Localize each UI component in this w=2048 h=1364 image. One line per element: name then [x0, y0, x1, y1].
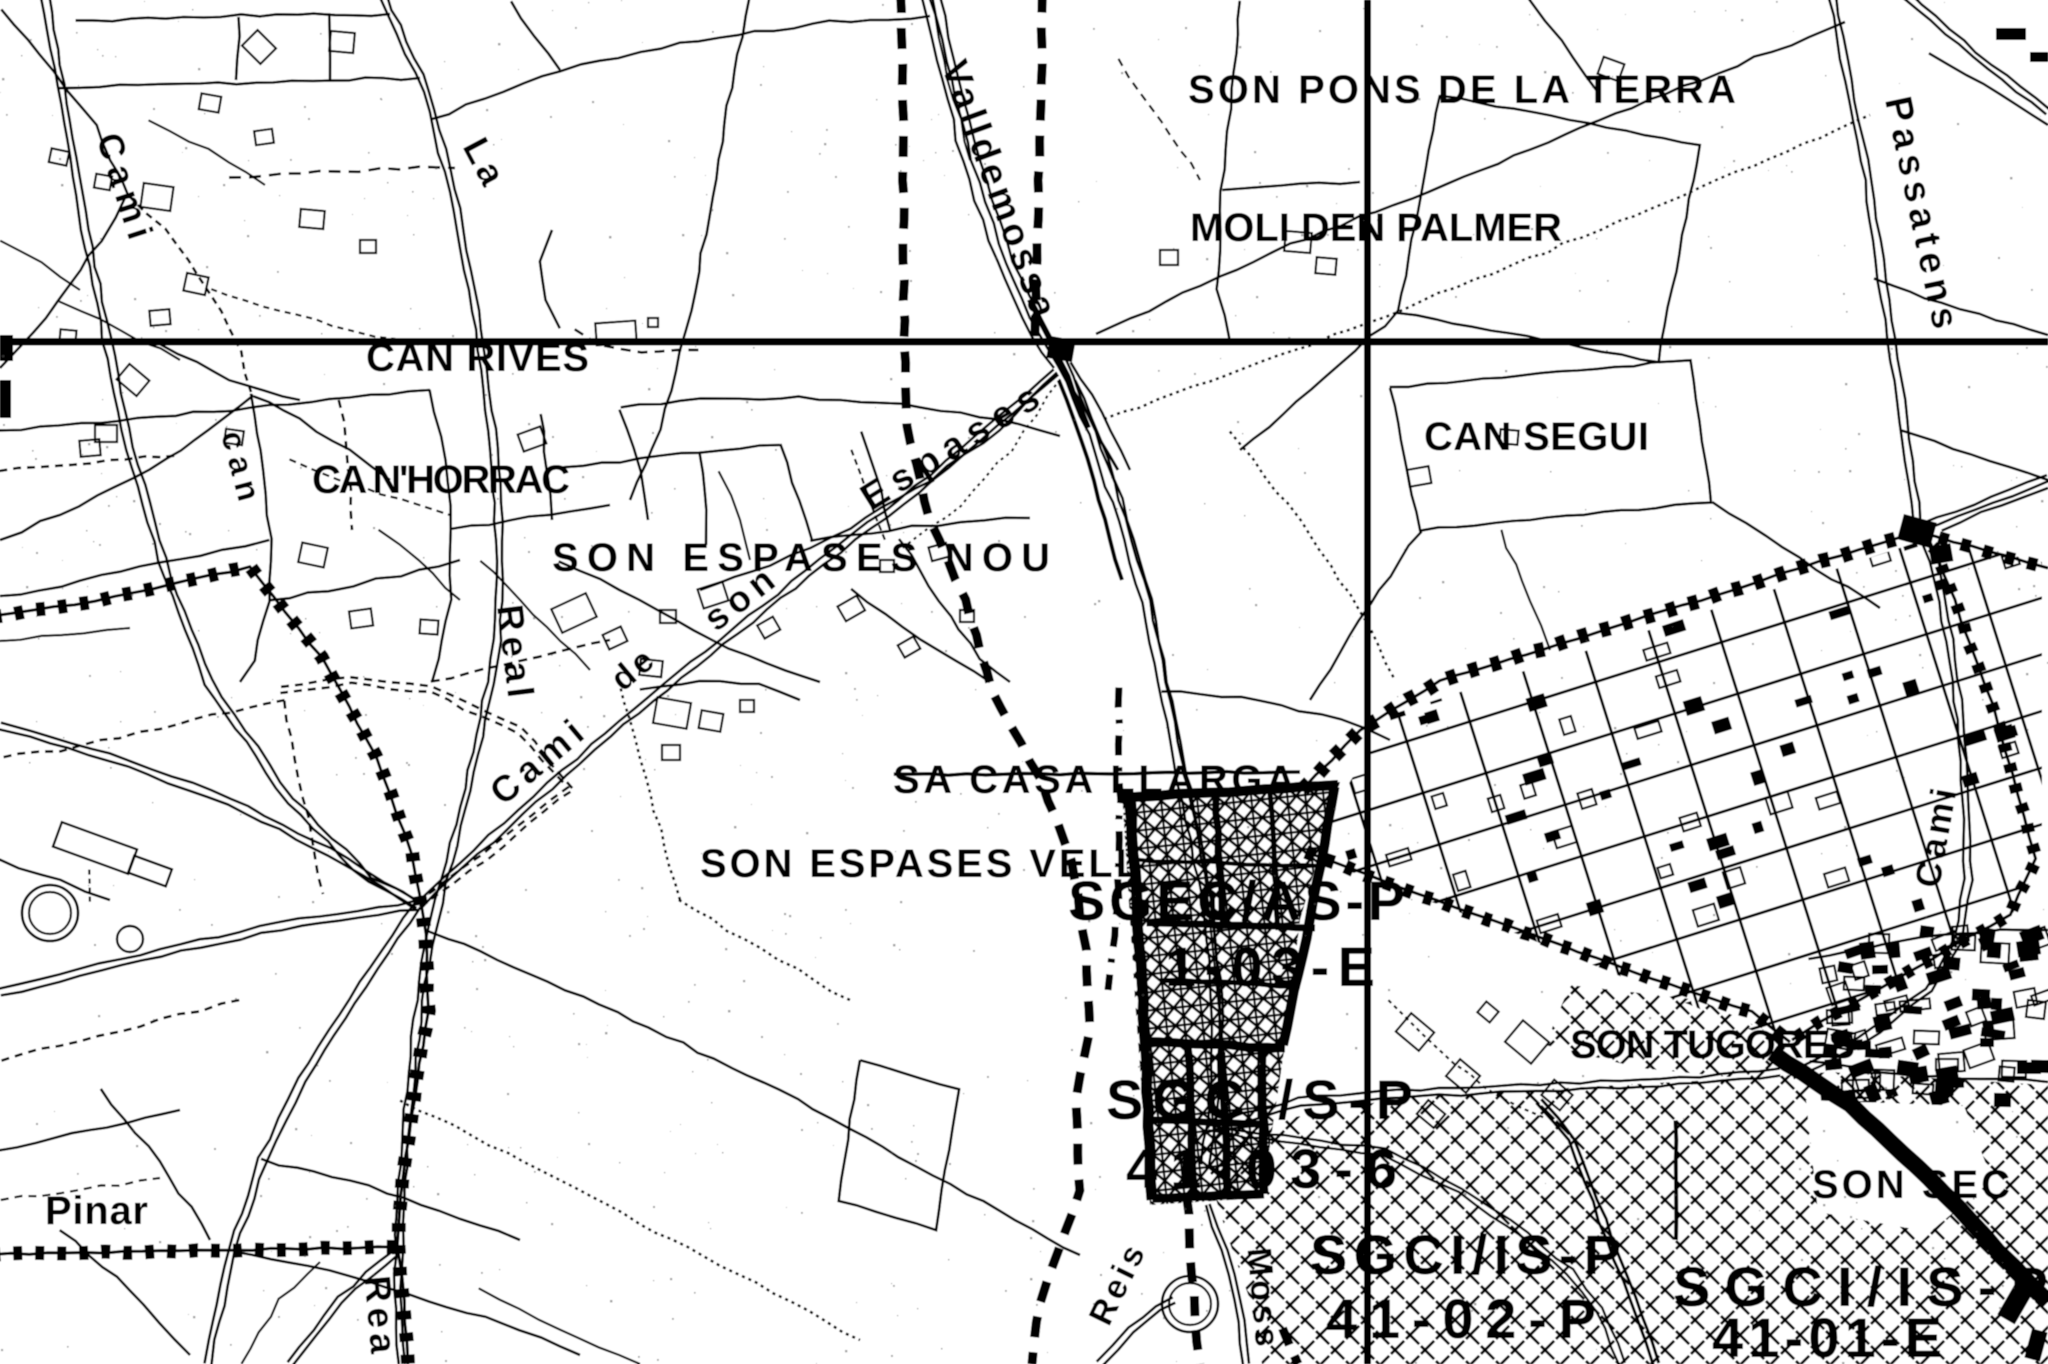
svg-text:SGCI/IS-P: SGCI/IS-P: [1310, 1223, 1621, 1286]
svg-text:SGEC/AS-P: SGEC/AS-P: [1068, 869, 1405, 932]
svg-text:SON SEC: SON SEC: [1812, 1163, 2010, 1207]
svg-text:MOLI DEN PALMER: MOLI DEN PALMER: [1190, 206, 1562, 250]
svg-text:SON PONS DE LA TERRA: SON PONS DE LA TERRA: [1188, 68, 1736, 112]
svg-text:CAN RIVES: CAN RIVES: [366, 336, 589, 380]
svg-text:Pinar: Pinar: [45, 1189, 148, 1233]
svg-text:CA N'HORRAC: CA N'HORRAC: [312, 458, 570, 502]
svg-text:SON TUGORES: SON TUGORES: [1570, 1023, 1855, 1067]
svg-text:Rea: Rea: [356, 1274, 404, 1360]
svg-text:CAN SEGUI: CAN SEGUI: [1424, 415, 1649, 459]
